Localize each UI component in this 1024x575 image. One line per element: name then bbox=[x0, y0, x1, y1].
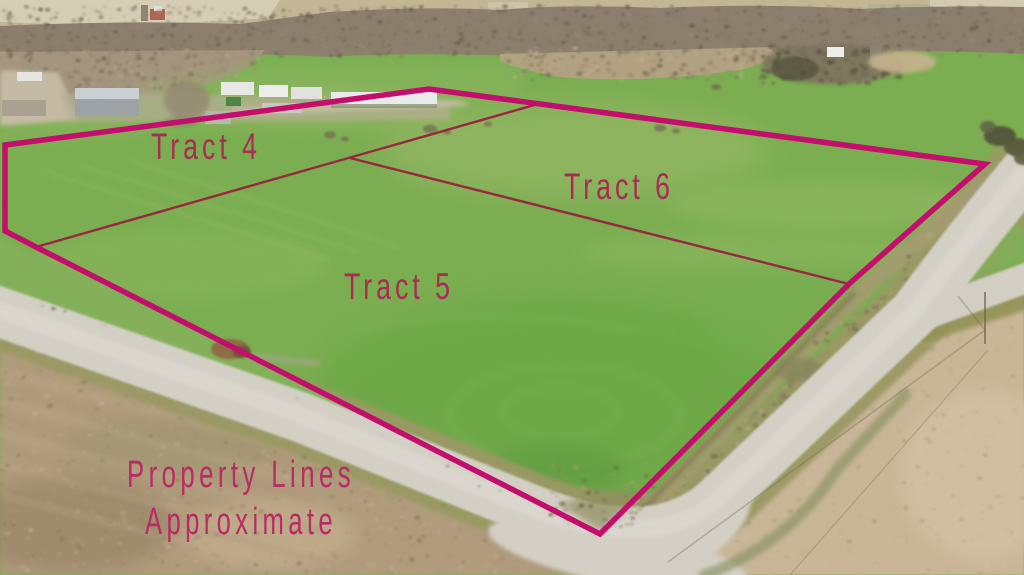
svg-text:Tract 6: Tract 6 bbox=[564, 166, 674, 207]
svg-text:Approximate: Approximate bbox=[145, 501, 337, 543]
svg-text:Tract 4: Tract 4 bbox=[151, 126, 261, 167]
svg-text:Property Lines: Property Lines bbox=[127, 454, 355, 496]
svg-text:Tract 5: Tract 5 bbox=[344, 266, 454, 307]
